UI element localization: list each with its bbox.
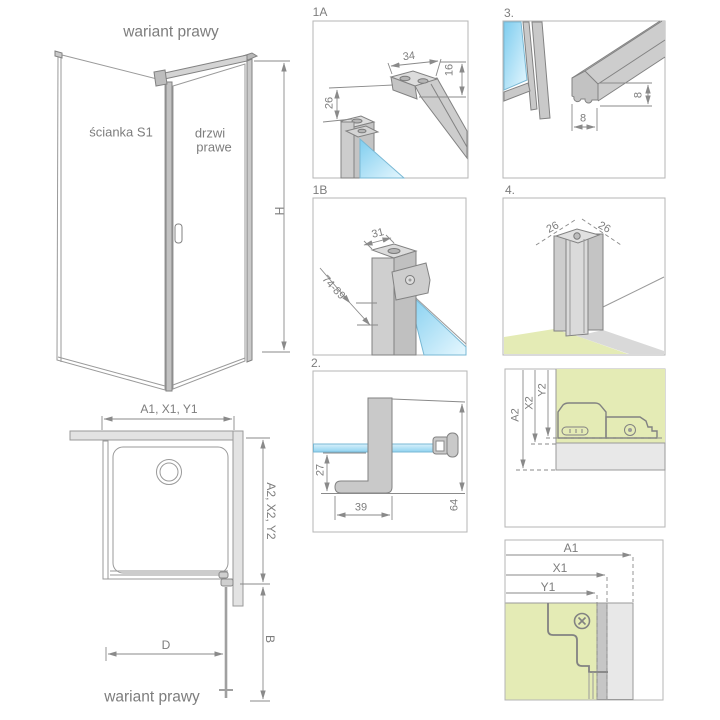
- iso-door-label-line2: prawe: [196, 141, 231, 154]
- d2-dim-39: 39: [355, 503, 367, 514]
- d6-floor-green: [506, 603, 608, 700]
- catalog-sheet: wariant prawy ścianka S1 drzwi prawe H A…: [0, 0, 720, 720]
- d1a-dim-26: 26: [325, 97, 336, 109]
- detail-4-drawing: [504, 219, 664, 354]
- iso-view-drawing: [55, 51, 290, 391]
- d1b-glass: [408, 292, 466, 355]
- d1a-support-bar: [414, 78, 467, 158]
- d6-door-profile: [597, 603, 607, 700]
- d5-dim-a2: A2: [511, 408, 522, 421]
- d2-dim-64: 64: [450, 499, 461, 511]
- d3-dim-height-8: 8: [634, 92, 645, 98]
- d5-dim-y2: Y2: [538, 383, 549, 396]
- d5-floor-green: [556, 369, 665, 443]
- iso-door-glass: [173, 64, 245, 389]
- detail-2-drawing: [314, 398, 466, 520]
- plan-caption: wariant prawy: [104, 689, 200, 705]
- iso-door-handle: [175, 224, 182, 243]
- detail-2-label: 2.: [311, 357, 321, 369]
- d4-corner-line: [603, 277, 664, 307]
- iso-wall-panel: [57, 54, 165, 390]
- iso-wall-top-cap: [55, 51, 62, 58]
- plan-wall-glass: [103, 441, 108, 579]
- iso-title: wariant prawy: [123, 24, 219, 40]
- detail-1a-drawing: [323, 59, 467, 178]
- detail-6-drawing: [506, 555, 634, 700]
- iso-wall-profile-right: [247, 59, 252, 362]
- plan-dim-right-label: A2, X2, Y2: [265, 482, 277, 539]
- d2-knob: [447, 433, 458, 457]
- plan-dim-b-label: B: [264, 635, 276, 643]
- d1a-dim-34: 34: [402, 51, 415, 63]
- plan-wall-top: [70, 431, 243, 440]
- plan-tray-inner: [113, 447, 228, 573]
- detail-1a-label: 1A: [313, 6, 328, 18]
- d1a-dim-16: 16: [445, 64, 456, 76]
- d6-wall-band: [607, 603, 633, 700]
- detail-4-label: 4.: [505, 184, 515, 196]
- d3-dim-width-8: 8: [580, 114, 586, 125]
- plan-dim-b: [250, 587, 270, 701]
- d6-dim-y1: Y1: [541, 581, 556, 593]
- d5-dim-x2: X2: [525, 396, 536, 409]
- plan-view-drawing: [70, 416, 270, 701]
- iso-wall-label: ścianka S1: [89, 126, 153, 139]
- plan-dim-d-label: D: [162, 639, 171, 651]
- detail-1b-label: 1B: [313, 184, 328, 196]
- plan-dim-top-label: A1, X1, Y1: [140, 403, 197, 415]
- plan-wall-right: [233, 431, 243, 606]
- iso-bar-clamp: [154, 70, 167, 86]
- d6-dim-a1: A1: [564, 542, 579, 554]
- d6-dim-x1: X1: [553, 562, 568, 574]
- d2-dims: [321, 399, 465, 520]
- plan-hinge: [219, 572, 228, 578]
- d1a-glass: [360, 139, 404, 178]
- plan-dim-top: [102, 416, 234, 430]
- iso-door-label-line1: drzwi: [195, 127, 225, 140]
- iso-dim-h-label: H: [273, 207, 285, 216]
- detail-3-label: 3.: [504, 7, 514, 19]
- technical-drawing-svg: [0, 0, 720, 720]
- d5-wall-band: [556, 443, 665, 470]
- iso-hinge-profile: [166, 82, 172, 391]
- d2-dim-27: 27: [316, 464, 327, 476]
